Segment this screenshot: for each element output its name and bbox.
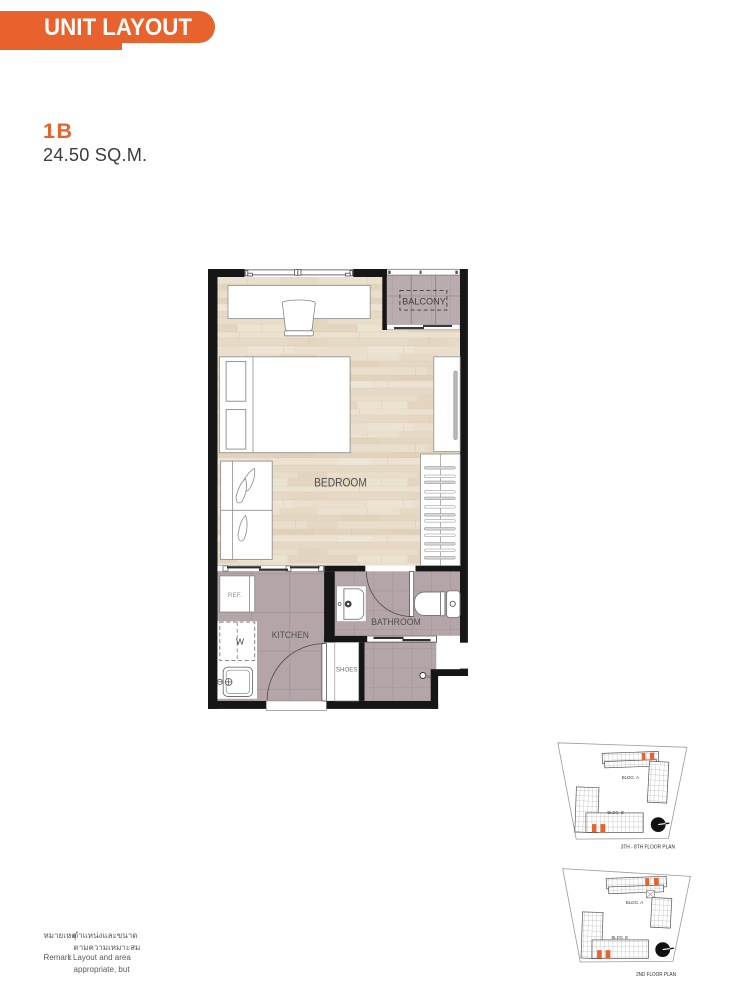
svg-text:SHOES: SHOES <box>336 667 358 674</box>
svg-text:BLDG. A: BLDG. A <box>626 900 643 905</box>
svg-text:W: W <box>236 637 244 647</box>
svg-text:BEDROOM: BEDROOM <box>314 477 367 489</box>
svg-text:BLDG. B: BLDG. B <box>612 935 628 940</box>
svg-text:REF.: REF. <box>228 592 242 599</box>
svg-text:BALCONY: BALCONY <box>402 297 446 307</box>
svg-text:BATHROOM: BATHROOM <box>371 617 421 627</box>
svg-text:BLDG. A: BLDG. A <box>622 775 639 780</box>
svg-text:x2: x2 <box>427 674 432 679</box>
svg-text:KITCHEN: KITCHEN <box>272 629 309 640</box>
svg-text:3TH - 8TH FLOOR PLAN: 3TH - 8TH FLOOR PLAN <box>621 845 675 851</box>
svg-text:2ND FLOOR PLAN: 2ND FLOOR PLAN <box>636 972 676 978</box>
svg-text:BLDG. B: BLDG. B <box>607 810 623 815</box>
